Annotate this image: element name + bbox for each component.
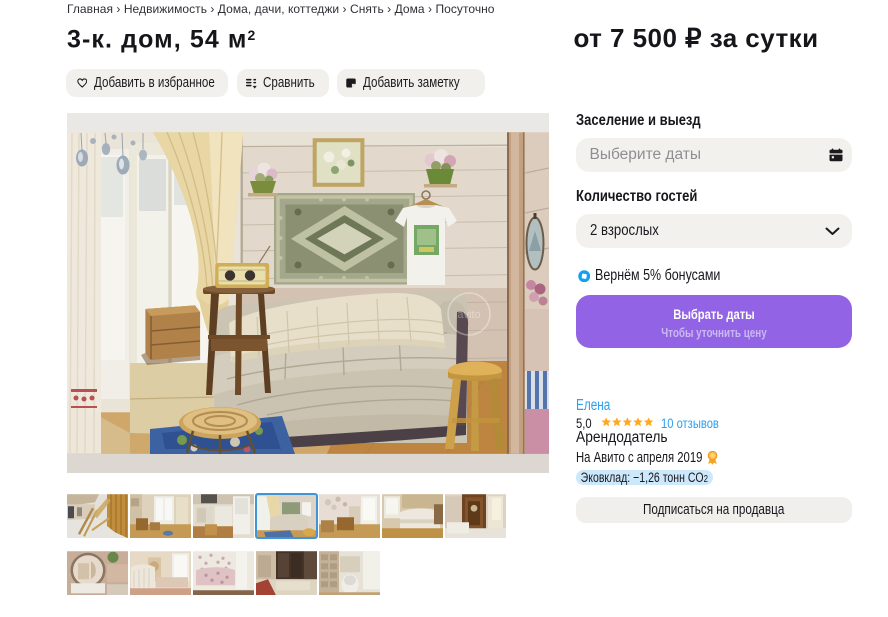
svg-text:avito: avito	[457, 309, 480, 321]
